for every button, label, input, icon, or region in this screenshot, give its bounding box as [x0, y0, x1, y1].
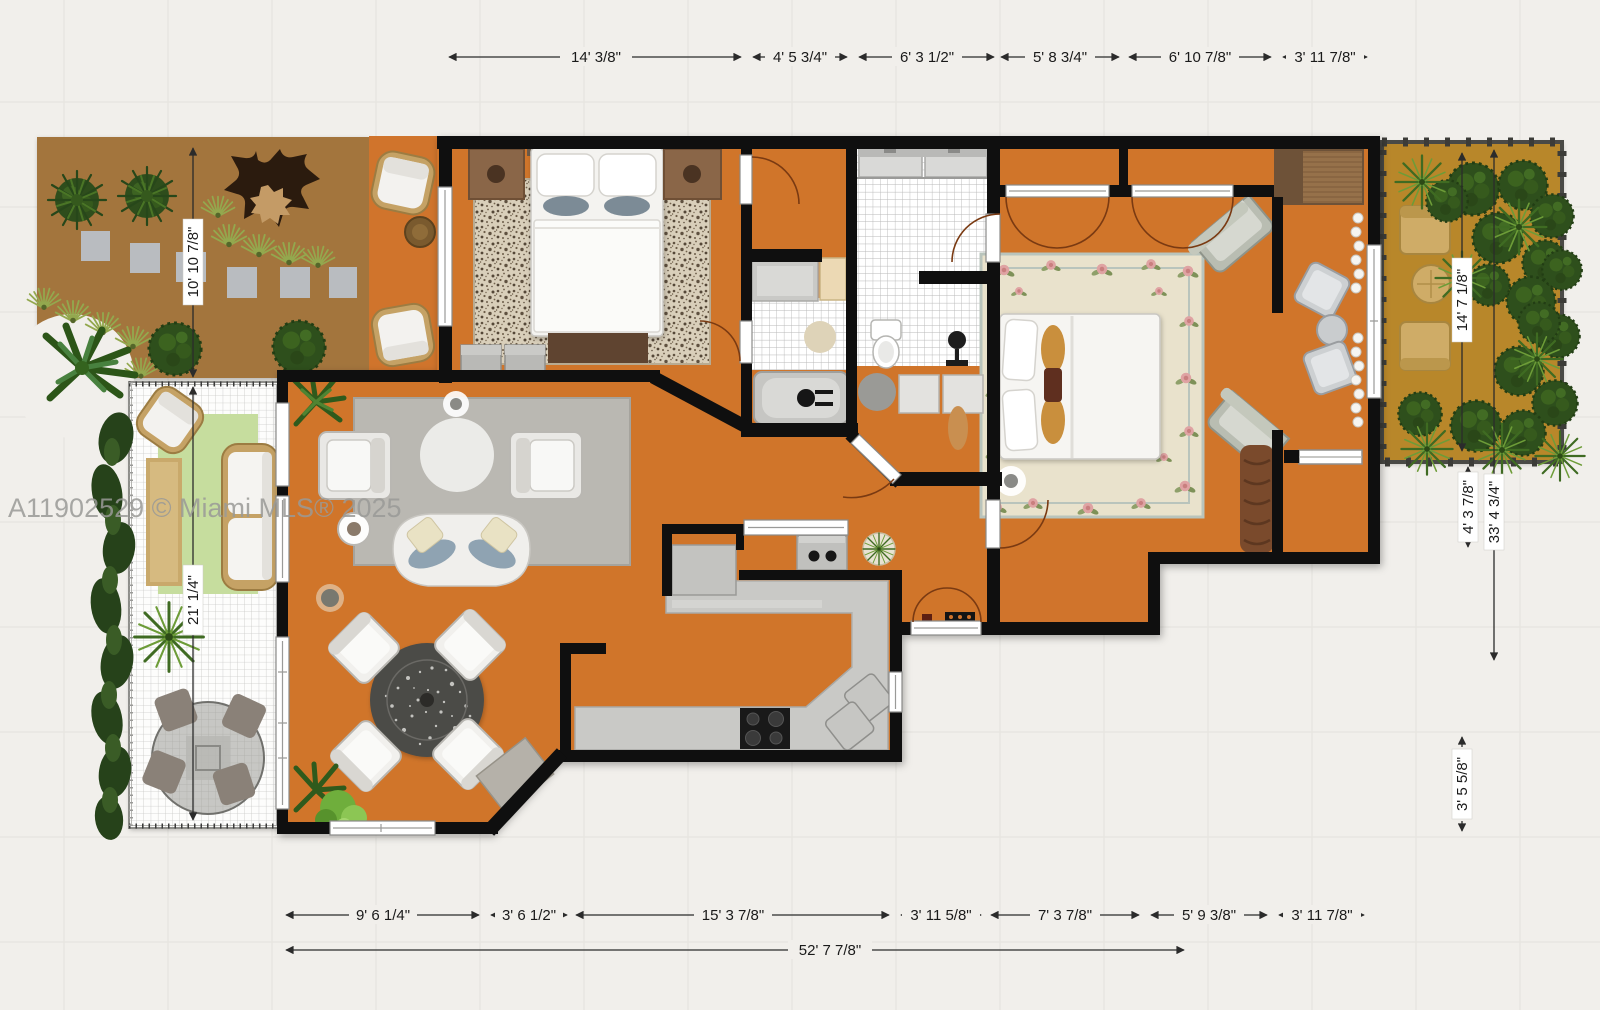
svg-text:4' 3 7/8": 4' 3 7/8" — [1460, 480, 1477, 534]
svg-text:5' 8 3/4": 5' 8 3/4" — [1033, 49, 1087, 66]
svg-text:3' 11 7/8": 3' 11 7/8" — [1294, 49, 1355, 66]
svg-text:10' 10 7/8": 10' 10 7/8" — [185, 227, 202, 298]
svg-text:6' 3 1/2": 6' 3 1/2" — [900, 49, 954, 66]
svg-text:3' 6 1/2": 3' 6 1/2" — [502, 907, 556, 924]
svg-text:33' 4 3/4": 33' 4 3/4" — [1486, 481, 1503, 543]
svg-text:52' 7 7/8": 52' 7 7/8" — [799, 942, 861, 959]
svg-text:3' 5 5/8": 3' 5 5/8" — [1454, 757, 1471, 811]
svg-text:3' 11 7/8": 3' 11 7/8" — [1291, 907, 1352, 924]
svg-text:3' 11 5/8": 3' 11 5/8" — [910, 907, 971, 924]
svg-text:5' 9 3/8": 5' 9 3/8" — [1182, 907, 1236, 924]
svg-text:7' 3 7/8": 7' 3 7/8" — [1038, 907, 1092, 924]
svg-text:14' 7 1/8": 14' 7 1/8" — [1454, 269, 1471, 331]
svg-text:14' 3/8": 14' 3/8" — [571, 49, 621, 66]
svg-text:4' 5 3/4": 4' 5 3/4" — [773, 49, 827, 66]
svg-text:6' 10 7/8": 6' 10 7/8" — [1169, 49, 1231, 66]
svg-text:A11902529 © Miami MLS® 2025: A11902529 © Miami MLS® 2025 — [8, 493, 402, 523]
svg-text:15' 3 7/8": 15' 3 7/8" — [702, 907, 764, 924]
svg-text:9' 6 1/4": 9' 6 1/4" — [356, 907, 410, 924]
svg-text:21' 1/4": 21' 1/4" — [185, 575, 202, 625]
